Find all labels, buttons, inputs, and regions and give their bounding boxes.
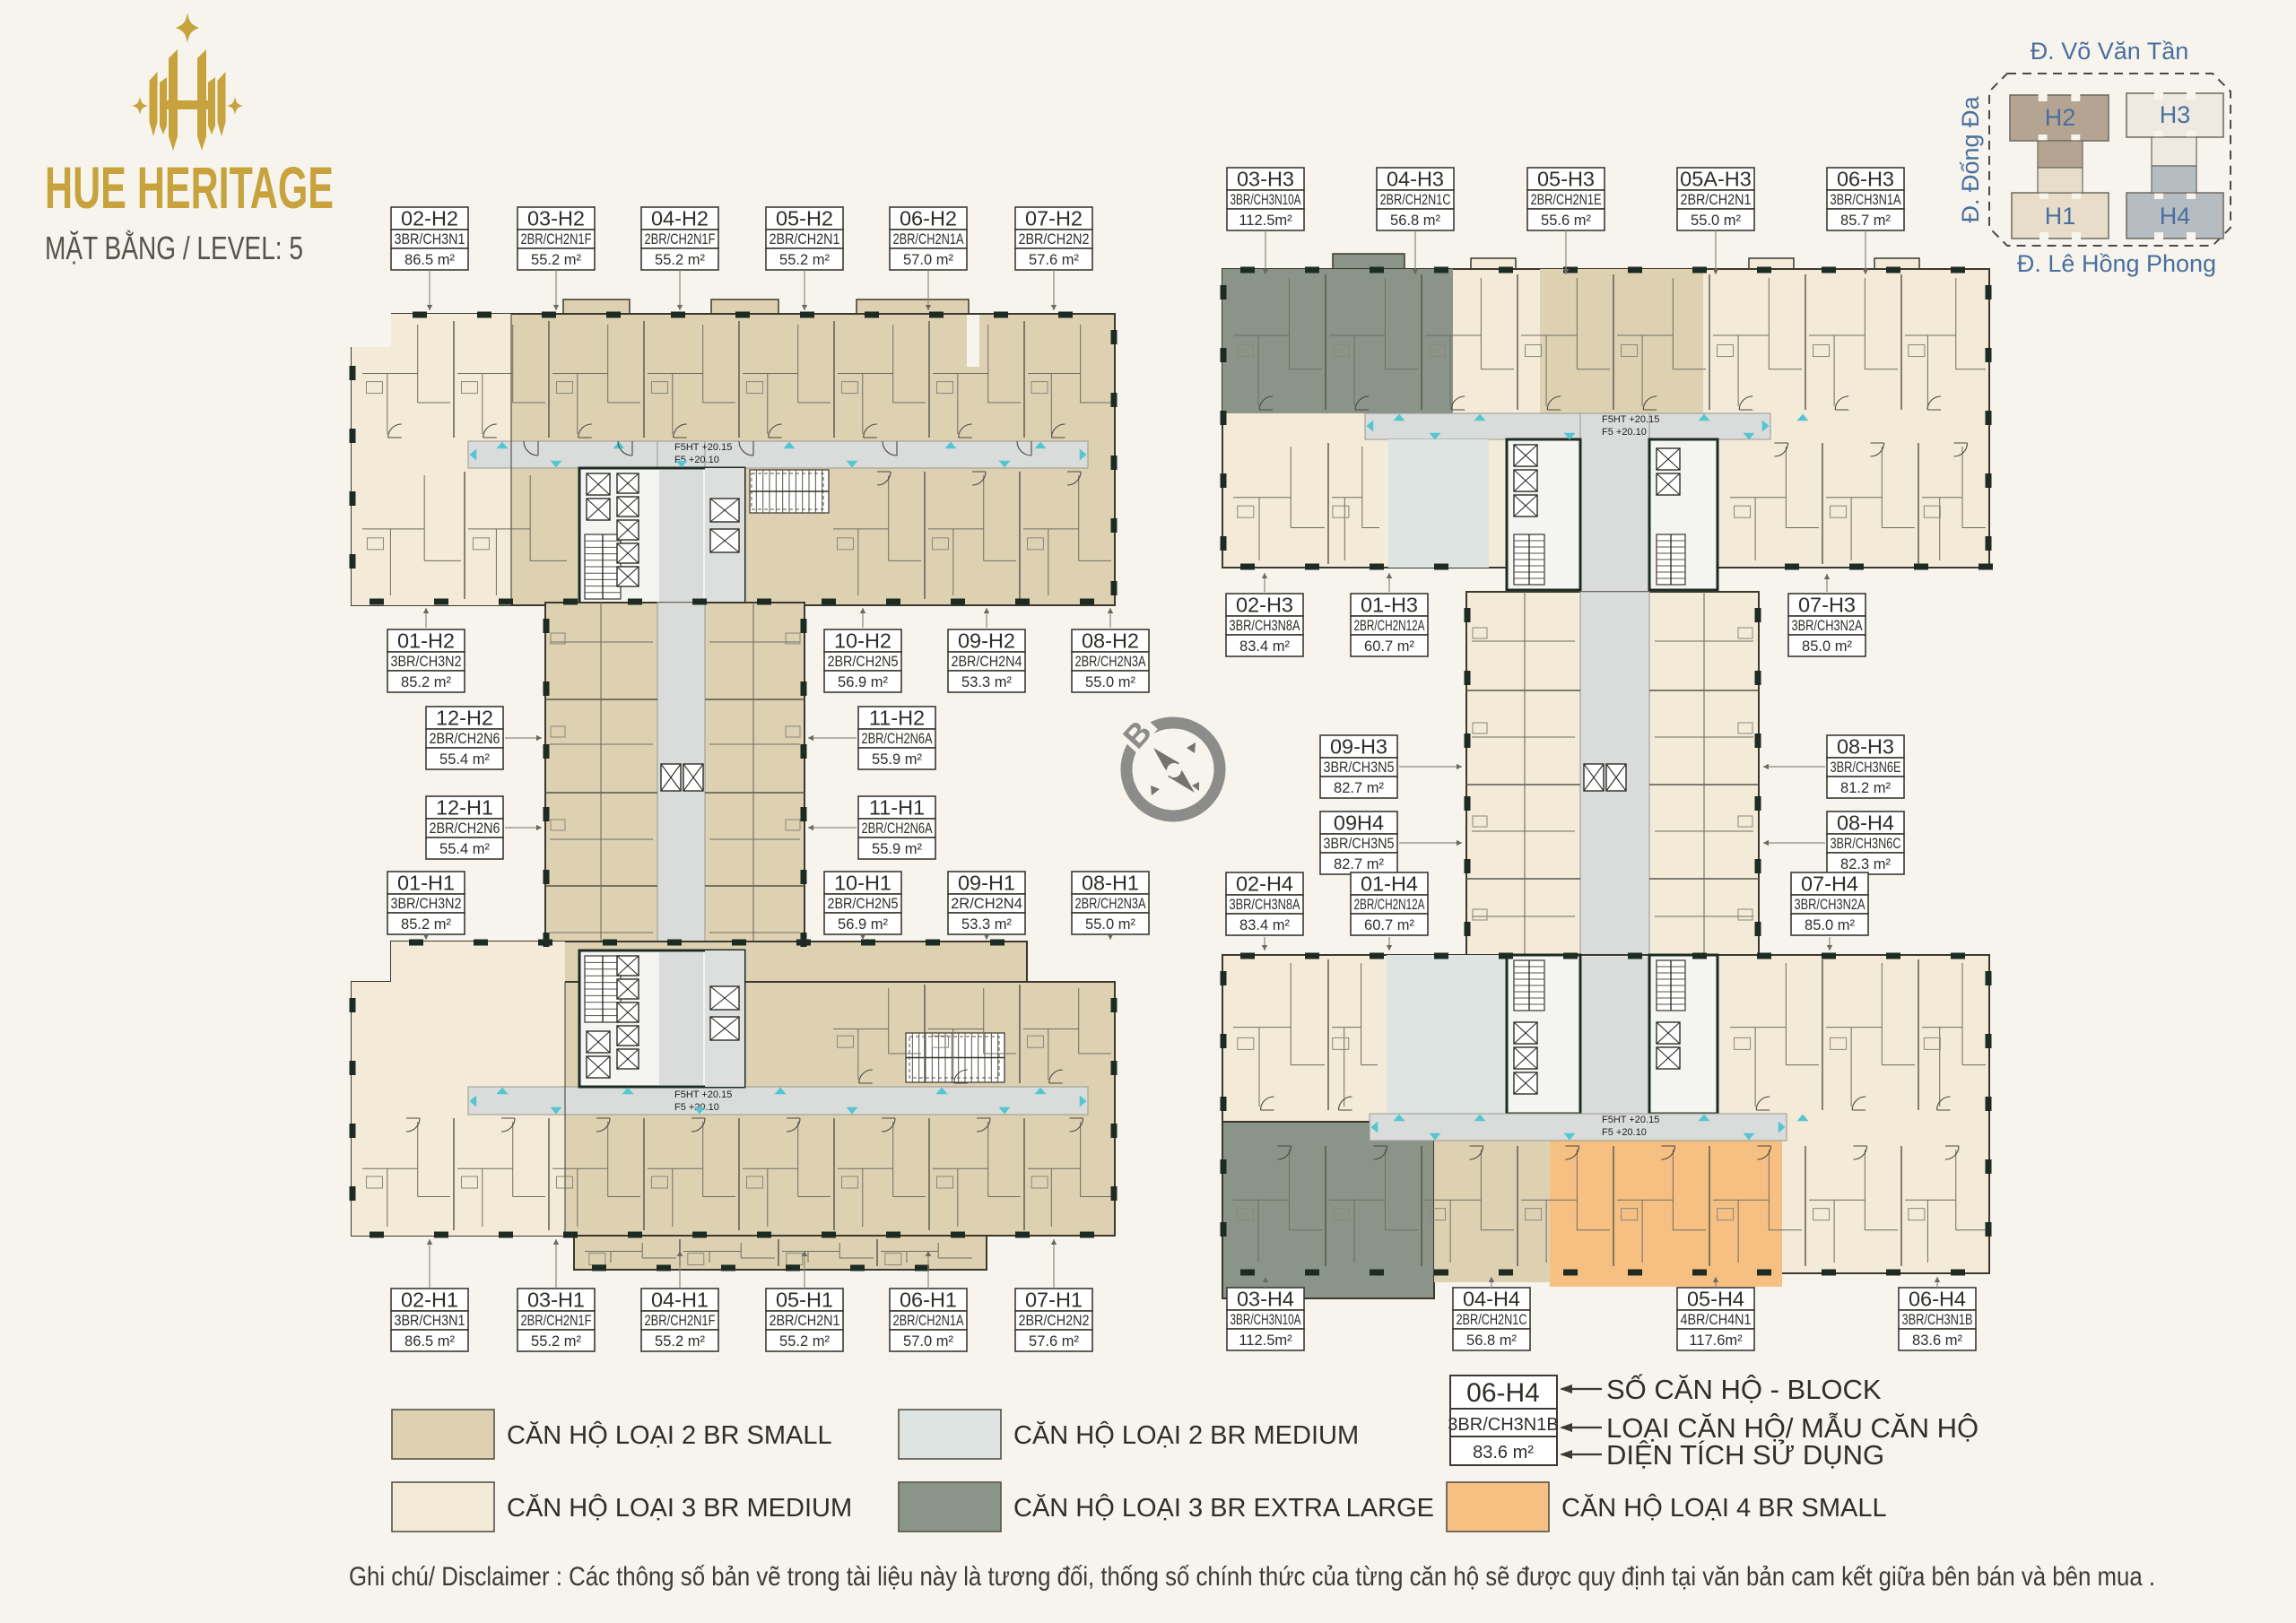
svg-text:F5 +20.10: F5 +20.10 [1602,427,1647,438]
svg-text:05-H1: 05-H1 [776,1289,833,1312]
svg-text:H3: H3 [2160,101,2191,128]
svg-text:2BR/CH2N1F: 2BR/CH2N1F [645,231,716,247]
svg-text:55.2 m²: 55.2 m² [531,1333,581,1350]
svg-text:Ghi chú/ Disclaimer : Các thôn: Ghi chú/ Disclaimer : Các thông số bản v… [349,1562,2155,1592]
svg-text:2BR/CH2N6: 2BR/CH2N6 [430,731,500,747]
svg-text:3BR/CH3N5: 3BR/CH3N5 [1324,759,1395,776]
svg-text:2BR/CH2N1: 2BR/CH2N1 [1681,192,1752,208]
svg-text:03-H3: 03-H3 [1237,168,1294,191]
svg-text:2BR/CH2N1F: 2BR/CH2N1F [521,1313,592,1329]
svg-text:10-H2: 10-H2 [834,629,891,653]
svg-text:03-H1: 03-H1 [527,1289,585,1312]
svg-text:82.7 m²: 82.7 m² [1334,856,1384,872]
svg-text:H2: H2 [2045,104,2076,131]
svg-text:11-H1: 11-H1 [869,796,925,820]
svg-text:57.6 m²: 57.6 m² [1029,252,1079,268]
svg-text:55.2 m²: 55.2 m² [655,252,705,268]
svg-text:85.0 m²: 85.0 m² [1805,917,1855,933]
svg-text:60.7 m²: 60.7 m² [1364,917,1414,933]
svg-text:CĂN HỘ LOẠI 4 BR SMALL: CĂN HỘ LOẠI 4 BR SMALL [1561,1492,1887,1523]
svg-text:3BR/CH3N1: 3BR/CH3N1 [395,1313,465,1329]
svg-text:2BR/CH2N4: 2BR/CH2N4 [952,654,1022,670]
svg-text:2BR/CH2N12A: 2BR/CH2N12A [1354,618,1425,634]
svg-text:55.0 m²: 55.0 m² [1691,213,1741,229]
svg-text:07-H4: 07-H4 [1801,872,1858,896]
svg-text:83.6 m²: 83.6 m² [1473,1443,1534,1462]
svg-text:CĂN HỘ LOẠI 2 BR SMALL: CĂN HỘ LOẠI 2 BR SMALL [507,1419,832,1450]
svg-text:82.7 m²: 82.7 m² [1334,780,1384,796]
svg-text:05-H2: 05-H2 [776,207,833,230]
svg-text:11-H2: 11-H2 [869,707,925,730]
svg-text:CĂN HỘ LOẠI 3 BR EXTRA LARGE: CĂN HỘ LOẠI 3 BR EXTRA LARGE [1013,1492,1434,1523]
svg-text:2BR/CH2N3A: 2BR/CH2N3A [1075,654,1146,670]
svg-text:3BR/CH3N2A: 3BR/CH3N2A [1795,897,1865,913]
svg-text:2BR/CH2N1F: 2BR/CH2N1F [521,231,592,247]
svg-text:09-H3: 09-H3 [1330,735,1387,759]
svg-text:57.0 m²: 57.0 m² [903,252,953,268]
svg-text:09H4: 09H4 [1334,811,1384,835]
svg-text:86.5 m²: 86.5 m² [404,252,455,268]
svg-text:01-H4: 01-H4 [1361,872,1418,896]
svg-text:83.6 m²: 83.6 m² [1912,1332,1962,1349]
svg-text:Đ. Võ Văn Tần: Đ. Võ Văn Tần [2031,38,2189,65]
svg-text:04-H1: 04-H1 [651,1289,709,1312]
svg-text:53.3 m²: 53.3 m² [961,916,1012,933]
svg-text:3BR/CH3N10A: 3BR/CH3N10A [1231,192,1301,208]
svg-text:CĂN HỘ LOẠI 2 BR MEDIUM: CĂN HỘ LOẠI 2 BR MEDIUM [1013,1419,1359,1450]
svg-text:02-H4: 02-H4 [1236,872,1293,896]
svg-text:3BR/CH3N6E: 3BR/CH3N6E [1831,759,1901,776]
svg-text:08-H3: 08-H3 [1837,735,1894,759]
svg-text:02-H3: 02-H3 [1236,594,1293,617]
svg-text:07-H3: 07-H3 [1798,594,1856,617]
svg-text:3BR/CH3N8A: 3BR/CH3N8A [1230,897,1300,913]
svg-text:117.6m²: 117.6m² [1689,1332,1743,1349]
svg-text:3BR/CH3N8A: 3BR/CH3N8A [1230,618,1300,634]
svg-text:3BR/CH3N5: 3BR/CH3N5 [1324,836,1395,852]
svg-text:2BR/CH2N5: 2BR/CH2N5 [828,896,899,912]
svg-text:3BR/CH3N6C: 3BR/CH3N6C [1831,836,1901,852]
svg-text:56.8 m²: 56.8 m² [1466,1332,1517,1349]
svg-text:F5HT +20.15: F5HT +20.15 [674,442,732,453]
svg-text:H4: H4 [2160,203,2191,230]
svg-text:H1: H1 [2045,203,2076,230]
svg-text:81.2 m²: 81.2 m² [1840,780,1891,796]
svg-text:55.2 m²: 55.2 m² [779,1333,830,1350]
svg-text:05A-H3: 05A-H3 [1680,168,1752,191]
svg-text:55.4 m²: 55.4 m² [439,841,490,857]
svg-text:2BR/CH2N6: 2BR/CH2N6 [430,820,500,837]
svg-text:10-H1: 10-H1 [834,872,891,895]
svg-text:55.9 m²: 55.9 m² [872,751,922,768]
svg-text:56.9 m²: 56.9 m² [838,674,888,690]
svg-text:07-H2: 07-H2 [1025,207,1083,230]
svg-text:09-H1: 09-H1 [958,872,1015,895]
svg-text:112.5m²: 112.5m² [1239,213,1292,229]
svg-text:56.8 m²: 56.8 m² [1390,213,1440,229]
svg-text:85.7 m²: 85.7 m² [1840,213,1891,229]
svg-text:12-H1: 12-H1 [436,796,493,820]
svg-text:3BR/CH3N1B: 3BR/CH3N1B [1902,1312,1973,1328]
svg-text:F5 +20.10: F5 +20.10 [1602,1127,1647,1138]
svg-text:86.5 m²: 86.5 m² [404,1333,455,1350]
svg-text:85.2 m²: 85.2 m² [401,916,451,933]
svg-text:2BR/CH2N3A: 2BR/CH2N3A [1075,896,1146,912]
svg-text:03-H4: 03-H4 [1237,1288,1294,1311]
svg-text:2BR/CH2N1A: 2BR/CH2N1A [893,231,964,247]
svg-text:Đ. Lê Hồng Phong: Đ. Lê Hồng Phong [2017,250,2216,277]
svg-text:55.0 m²: 55.0 m² [1085,674,1135,690]
svg-text:83.4 m²: 83.4 m² [1239,638,1290,655]
svg-text:01-H2: 01-H2 [397,629,455,653]
svg-text:2BR/CH2N1F: 2BR/CH2N1F [645,1313,716,1329]
svg-text:04-H2: 04-H2 [651,207,709,230]
svg-text:F5HT +20.15: F5HT +20.15 [1602,1115,1659,1125]
svg-text:2BR/CH2N2: 2BR/CH2N2 [1019,1313,1090,1329]
svg-text:08-H1: 08-H1 [1082,872,1139,895]
svg-text:12-H2: 12-H2 [436,707,493,730]
svg-text:85.0 m²: 85.0 m² [1802,638,1852,655]
svg-text:Đ. Đống Đa: Đ. Đống Đa [1957,95,1984,222]
svg-text:82.3 m²: 82.3 m² [1840,856,1891,872]
svg-text:55.6 m²: 55.6 m² [1541,213,1591,229]
svg-text:55.2 m²: 55.2 m² [531,252,581,268]
svg-text:08-H4: 08-H4 [1837,811,1894,835]
svg-text:83.4 m²: 83.4 m² [1239,917,1290,933]
svg-text:07-H1: 07-H1 [1025,1289,1083,1312]
svg-text:02-H2: 02-H2 [401,207,458,230]
svg-text:01-H3: 01-H3 [1361,594,1418,617]
svg-text:MẶT BẰNG / LEVEL: 5: MẶT BẰNG / LEVEL: 5 [45,230,303,266]
svg-text:02-H1: 02-H1 [401,1289,458,1312]
svg-text:05-H4: 05-H4 [1687,1288,1744,1311]
svg-text:55.0 m²: 55.0 m² [1085,916,1135,933]
svg-text:06-H4: 06-H4 [1909,1288,1966,1311]
svg-text:55.4 m²: 55.4 m² [439,751,490,768]
svg-text:2BR/CH2N2: 2BR/CH2N2 [1019,231,1090,247]
svg-text:55.2 m²: 55.2 m² [779,252,830,268]
svg-text:03-H2: 03-H2 [527,207,585,230]
svg-text:3BR/CH3N10A: 3BR/CH3N10A [1231,1312,1301,1328]
svg-text:3BR/CH3N1B: 3BR/CH3N1B [1448,1415,1558,1435]
svg-text:4BR/CH4N1: 4BR/CH4N1 [1681,1312,1752,1328]
svg-text:2BR/CH2N1E: 2BR/CH2N1E [1531,192,1602,208]
svg-text:3BR/CH3N2: 3BR/CH3N2 [391,654,462,670]
svg-text:08-H2: 08-H2 [1082,629,1139,653]
svg-text:04-H3: 04-H3 [1387,168,1444,191]
svg-text:06-H3: 06-H3 [1837,168,1894,191]
svg-text:2BR/CH2N5: 2BR/CH2N5 [828,654,899,670]
svg-text:F5HT +20.15: F5HT +20.15 [1602,414,1659,425]
svg-text:DIỆN TÍCH SỬ DỤNG: DIỆN TÍCH SỬ DỤNG [1606,1438,1884,1471]
svg-text:2BR/CH2N1C: 2BR/CH2N1C [1380,192,1451,208]
svg-text:56.9 m²: 56.9 m² [838,916,888,933]
svg-text:2BR/CH2N12A: 2BR/CH2N12A [1354,897,1425,913]
svg-text:06-H2: 06-H2 [900,207,957,230]
svg-text:06-H4: 06-H4 [1466,1378,1540,1408]
svg-text:SỐ CĂN HỘ - BLOCK: SỐ CĂN HỘ - BLOCK [1606,1373,1882,1405]
svg-text:01-H1: 01-H1 [397,872,455,895]
svg-text:112.5m²: 112.5m² [1239,1332,1292,1349]
svg-text:85.2 m²: 85.2 m² [401,674,451,690]
svg-text:2R/CH2N4: 2R/CH2N4 [951,896,1022,912]
svg-text:2BR/CH2N6A: 2BR/CH2N6A [862,820,933,837]
svg-text:F5HT +20.15: F5HT +20.15 [674,1089,732,1100]
svg-text:3BR/CH3N1: 3BR/CH3N1 [395,231,465,247]
svg-text:53.3 m²: 53.3 m² [961,674,1012,690]
svg-text:2BR/CH2N1C: 2BR/CH2N1C [1457,1312,1527,1328]
svg-text:06-H1: 06-H1 [900,1289,957,1312]
svg-text:2BR/CH2N1: 2BR/CH2N1 [770,1313,840,1329]
svg-text:04-H4: 04-H4 [1463,1288,1520,1311]
svg-text:3BR/CH3N2A: 3BR/CH3N2A [1792,618,1863,634]
svg-text:3BR/CH3N1A: 3BR/CH3N1A [1831,192,1901,208]
svg-text:2BR/CH2N1A: 2BR/CH2N1A [893,1313,964,1329]
svg-text:55.2 m²: 55.2 m² [655,1333,705,1350]
svg-text:3BR/CH3N2: 3BR/CH3N2 [391,896,462,912]
svg-text:55.9 m²: 55.9 m² [872,841,922,857]
svg-text:57.0 m²: 57.0 m² [903,1333,953,1350]
svg-text:05-H3: 05-H3 [1537,168,1595,191]
svg-text:57.6 m²: 57.6 m² [1029,1333,1079,1350]
svg-text:2BR/CH2N1: 2BR/CH2N1 [770,231,840,247]
svg-text:2BR/CH2N6A: 2BR/CH2N6A [862,731,933,747]
svg-text:HUE HERITAGE: HUE HERITAGE [45,154,334,221]
svg-text:09-H2: 09-H2 [958,629,1015,653]
svg-text:CĂN HỘ LOẠI 3 BR MEDIUM: CĂN HỘ LOẠI 3 BR MEDIUM [507,1492,852,1523]
svg-text:60.7 m²: 60.7 m² [1364,638,1414,655]
